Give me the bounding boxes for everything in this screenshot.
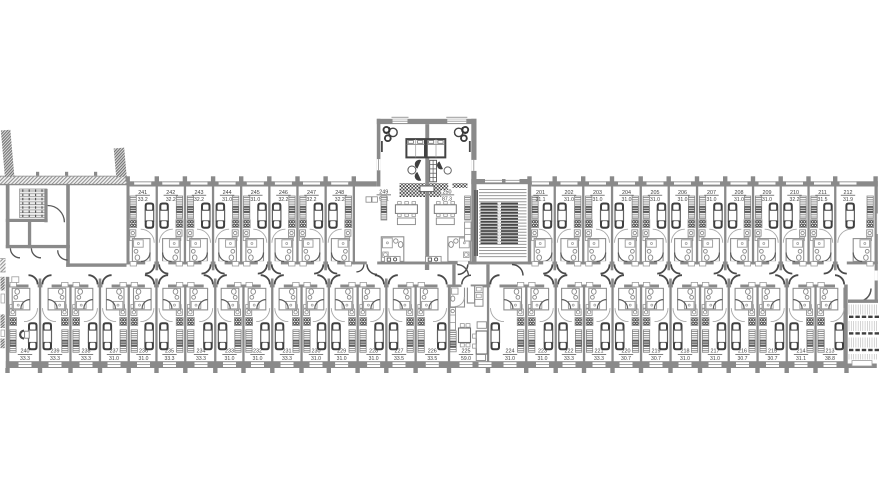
svg-text:33.3: 33.3 bbox=[50, 356, 60, 362]
svg-text:31.0: 31.0 bbox=[707, 197, 717, 203]
svg-text:233: 233 bbox=[225, 349, 234, 355]
svg-text:31.0: 31.0 bbox=[762, 197, 772, 203]
svg-text:32.2: 32.2 bbox=[307, 197, 317, 203]
svg-text:31.1: 31.1 bbox=[536, 197, 546, 203]
svg-text:227: 227 bbox=[395, 349, 404, 355]
svg-text:217: 217 bbox=[711, 349, 720, 355]
svg-text:240: 240 bbox=[21, 349, 30, 355]
svg-text:33.3: 33.3 bbox=[282, 356, 292, 362]
svg-text:33.5: 33.5 bbox=[394, 356, 404, 362]
svg-text:236: 236 bbox=[139, 349, 148, 355]
svg-text:216: 216 bbox=[738, 349, 747, 355]
svg-text:32.2: 32.2 bbox=[166, 197, 176, 203]
svg-text:31.0: 31.0 bbox=[253, 356, 263, 362]
svg-text:223: 223 bbox=[538, 349, 547, 355]
svg-text:221: 221 bbox=[595, 349, 604, 355]
svg-text:31.5: 31.5 bbox=[818, 197, 828, 203]
svg-text:33.3: 33.3 bbox=[81, 356, 91, 362]
svg-text:31.0: 31.0 bbox=[678, 197, 688, 203]
svg-text:59.0: 59.0 bbox=[461, 356, 471, 362]
svg-text:31.0: 31.0 bbox=[710, 356, 720, 362]
svg-text:213: 213 bbox=[826, 349, 835, 355]
svg-text:235: 235 bbox=[165, 349, 174, 355]
svg-text:33.3: 33.3 bbox=[165, 356, 175, 362]
svg-text:32.2: 32.2 bbox=[790, 197, 800, 203]
svg-text:219: 219 bbox=[652, 349, 661, 355]
svg-text:31.0: 31.0 bbox=[109, 356, 119, 362]
svg-text:33.3: 33.3 bbox=[564, 356, 574, 362]
svg-text:31.0: 31.0 bbox=[505, 356, 515, 362]
svg-text:33.5: 33.5 bbox=[427, 356, 437, 362]
svg-text:87.3: 87.3 bbox=[442, 196, 452, 202]
svg-text:33.2: 33.2 bbox=[138, 197, 148, 203]
svg-text:31.0: 31.0 bbox=[311, 356, 321, 362]
svg-text:31.0: 31.0 bbox=[650, 197, 660, 203]
svg-text:38.8: 38.8 bbox=[825, 356, 835, 362]
svg-text:31.0: 31.0 bbox=[680, 356, 690, 362]
svg-text:30.7: 30.7 bbox=[768, 356, 778, 362]
svg-text:228: 228 bbox=[369, 349, 378, 355]
svg-text:33.3: 33.3 bbox=[594, 356, 604, 362]
svg-text:225: 225 bbox=[462, 349, 471, 355]
svg-text:224: 224 bbox=[506, 349, 515, 355]
svg-text:31.0: 31.0 bbox=[734, 197, 744, 203]
svg-text:31.0: 31.0 bbox=[622, 197, 632, 203]
svg-text:226: 226 bbox=[428, 349, 437, 355]
svg-text:234: 234 bbox=[197, 349, 206, 355]
svg-text:30.7: 30.7 bbox=[738, 356, 748, 362]
svg-text:231: 231 bbox=[283, 349, 292, 355]
svg-text:232: 232 bbox=[253, 349, 262, 355]
svg-text:31.0: 31.0 bbox=[337, 356, 347, 362]
svg-text:229: 229 bbox=[337, 349, 346, 355]
svg-text:31.1: 31.1 bbox=[796, 356, 806, 362]
svg-text:32.2: 32.2 bbox=[335, 197, 345, 203]
svg-text:239: 239 bbox=[51, 349, 60, 355]
svg-text:31.0: 31.0 bbox=[225, 356, 235, 362]
svg-text:214: 214 bbox=[797, 349, 806, 355]
svg-text:31.0: 31.0 bbox=[222, 197, 232, 203]
svg-text:30.7: 30.7 bbox=[621, 356, 631, 362]
svg-text:33.3: 33.3 bbox=[20, 356, 30, 362]
svg-text:215: 215 bbox=[768, 349, 777, 355]
svg-text:31.0: 31.0 bbox=[250, 197, 260, 203]
svg-text:31.0: 31.0 bbox=[564, 197, 574, 203]
svg-text:32.2: 32.2 bbox=[278, 197, 288, 203]
svg-text:237: 237 bbox=[110, 349, 119, 355]
svg-text:32.2: 32.2 bbox=[194, 197, 204, 203]
svg-text:230: 230 bbox=[312, 349, 321, 355]
svg-text:220: 220 bbox=[622, 349, 631, 355]
svg-text:218: 218 bbox=[681, 349, 690, 355]
svg-text:31.0: 31.0 bbox=[139, 356, 149, 362]
svg-text:31.0: 31.0 bbox=[538, 356, 548, 362]
svg-text:33.3: 33.3 bbox=[196, 356, 206, 362]
svg-text:31.0: 31.0 bbox=[369, 356, 379, 362]
svg-text:31.9: 31.9 bbox=[843, 197, 853, 203]
svg-text:222: 222 bbox=[565, 349, 574, 355]
svg-text:238: 238 bbox=[82, 349, 91, 355]
svg-text:30.7: 30.7 bbox=[651, 356, 661, 362]
svg-text:31.0: 31.0 bbox=[593, 197, 603, 203]
